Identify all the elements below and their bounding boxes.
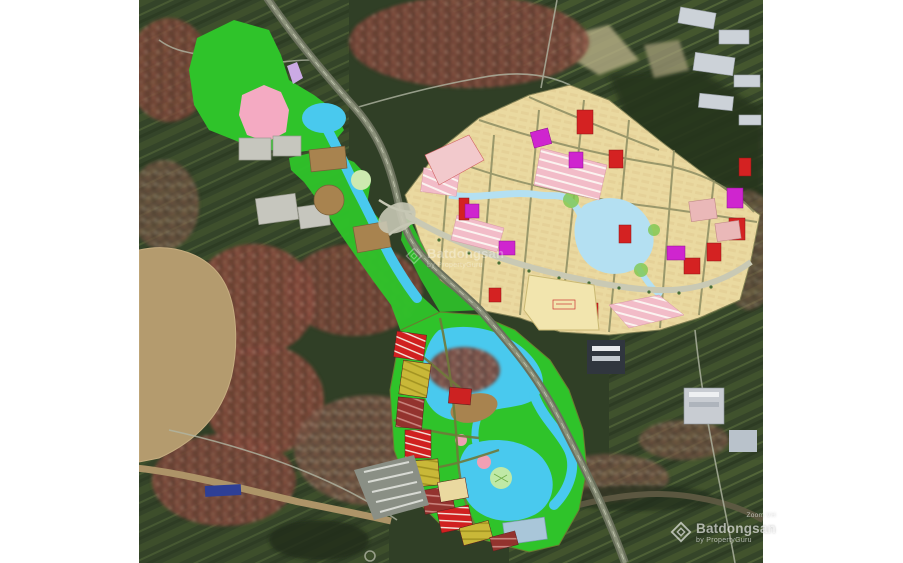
satellite-masterplan-image	[139, 0, 763, 563]
golf-green	[490, 467, 512, 489]
park-lawn-circle	[351, 170, 371, 190]
nw-pink-zone	[239, 85, 289, 142]
map-canvas	[139, 0, 763, 563]
listing-photo-page: Batdongsan by PropertyGuru Zoom VH Batdo…	[0, 0, 903, 563]
blue-roof-building	[205, 484, 242, 497]
nw-lake	[302, 103, 346, 133]
dark-factory-block	[587, 340, 625, 374]
